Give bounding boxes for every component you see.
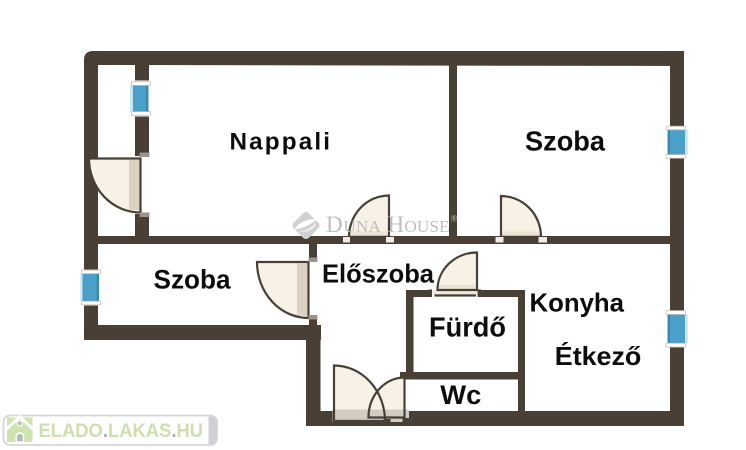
- svg-text:ELADO.LAKAS.HU: ELADO.LAKAS.HU: [39, 421, 204, 442]
- svg-text:Konyha: Konyha: [530, 289, 625, 317]
- svg-text:UNA: UNA: [344, 217, 382, 236]
- svg-text:D: D: [326, 212, 343, 237]
- svg-text:OUSE: OUSE: [405, 217, 450, 236]
- svg-text:Szoba: Szoba: [525, 126, 605, 157]
- svg-text:Étkező: Étkező: [555, 342, 642, 371]
- svg-text:®: ®: [451, 214, 458, 224]
- svg-text:Előszoba: Előszoba: [322, 261, 435, 289]
- svg-text:Wc: Wc: [440, 380, 481, 410]
- svg-text:H: H: [388, 212, 405, 237]
- svg-text:Fürdő: Fürdő: [429, 312, 506, 343]
- svg-text:Szoba: Szoba: [154, 265, 232, 295]
